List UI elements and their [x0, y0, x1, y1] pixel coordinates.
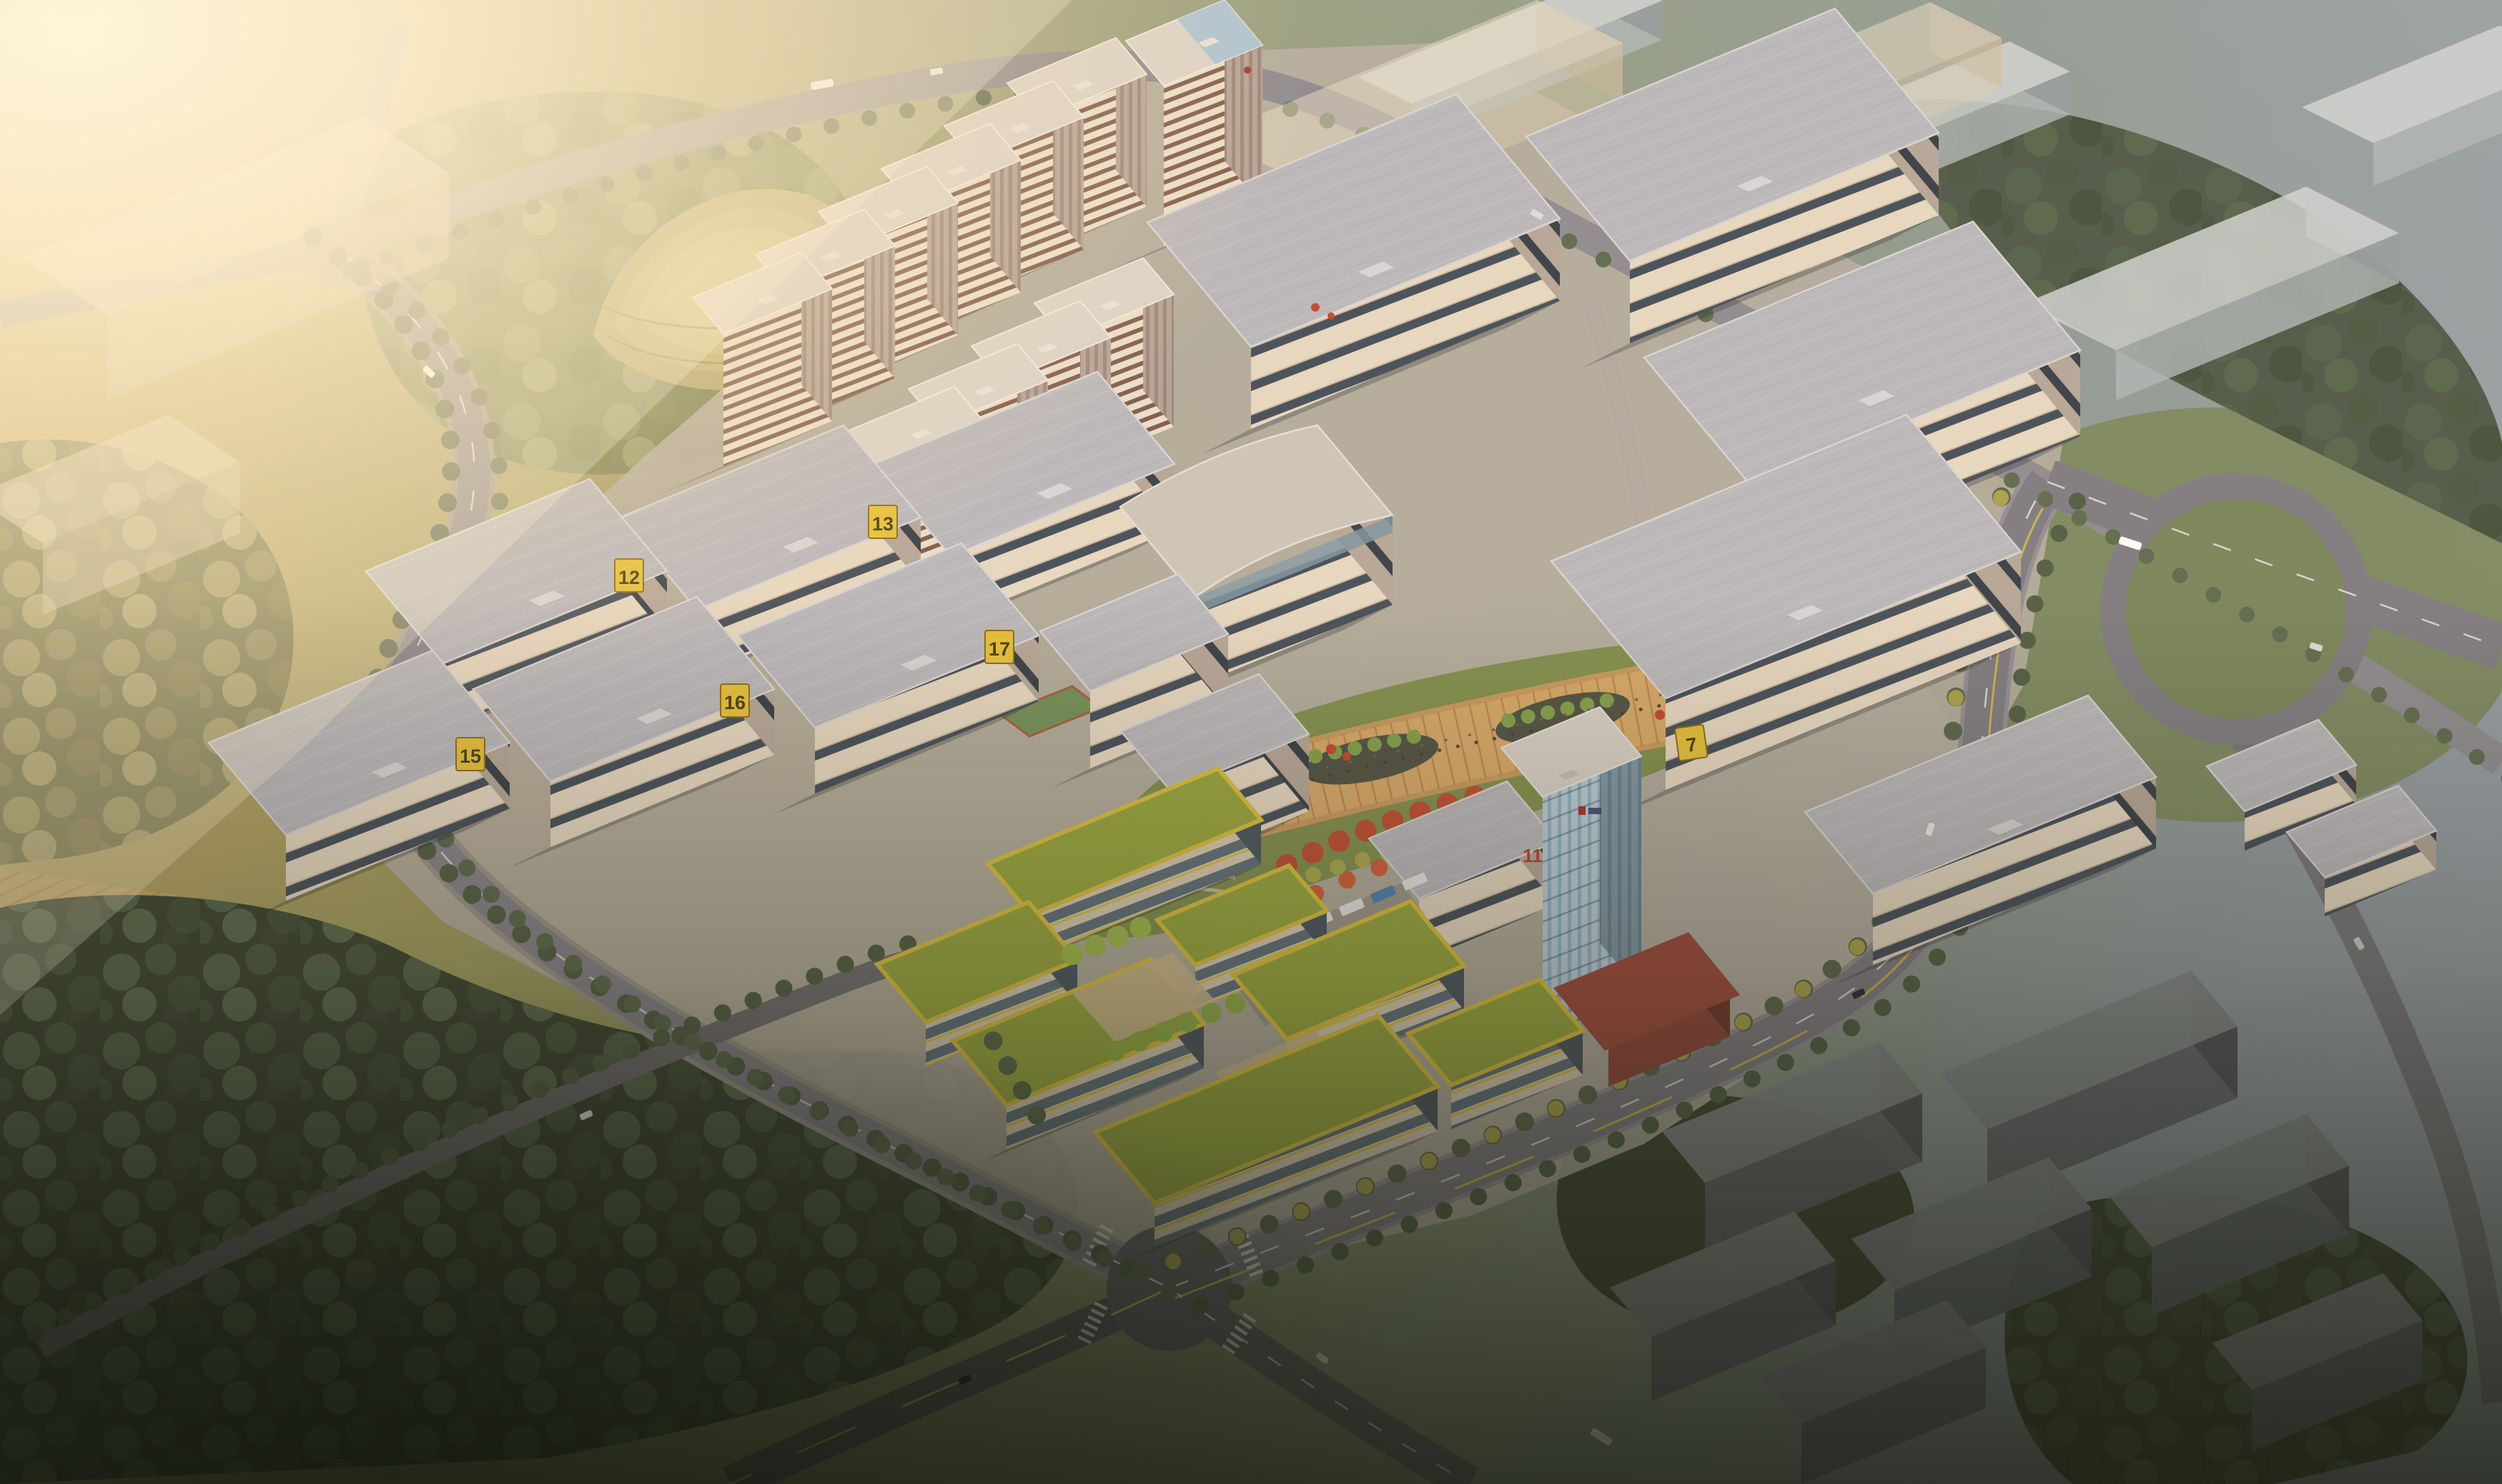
- atmosphere: [0, 0, 2502, 1484]
- aerial-rendering: 12 13 15 16 17 7 11: [0, 0, 2502, 1484]
